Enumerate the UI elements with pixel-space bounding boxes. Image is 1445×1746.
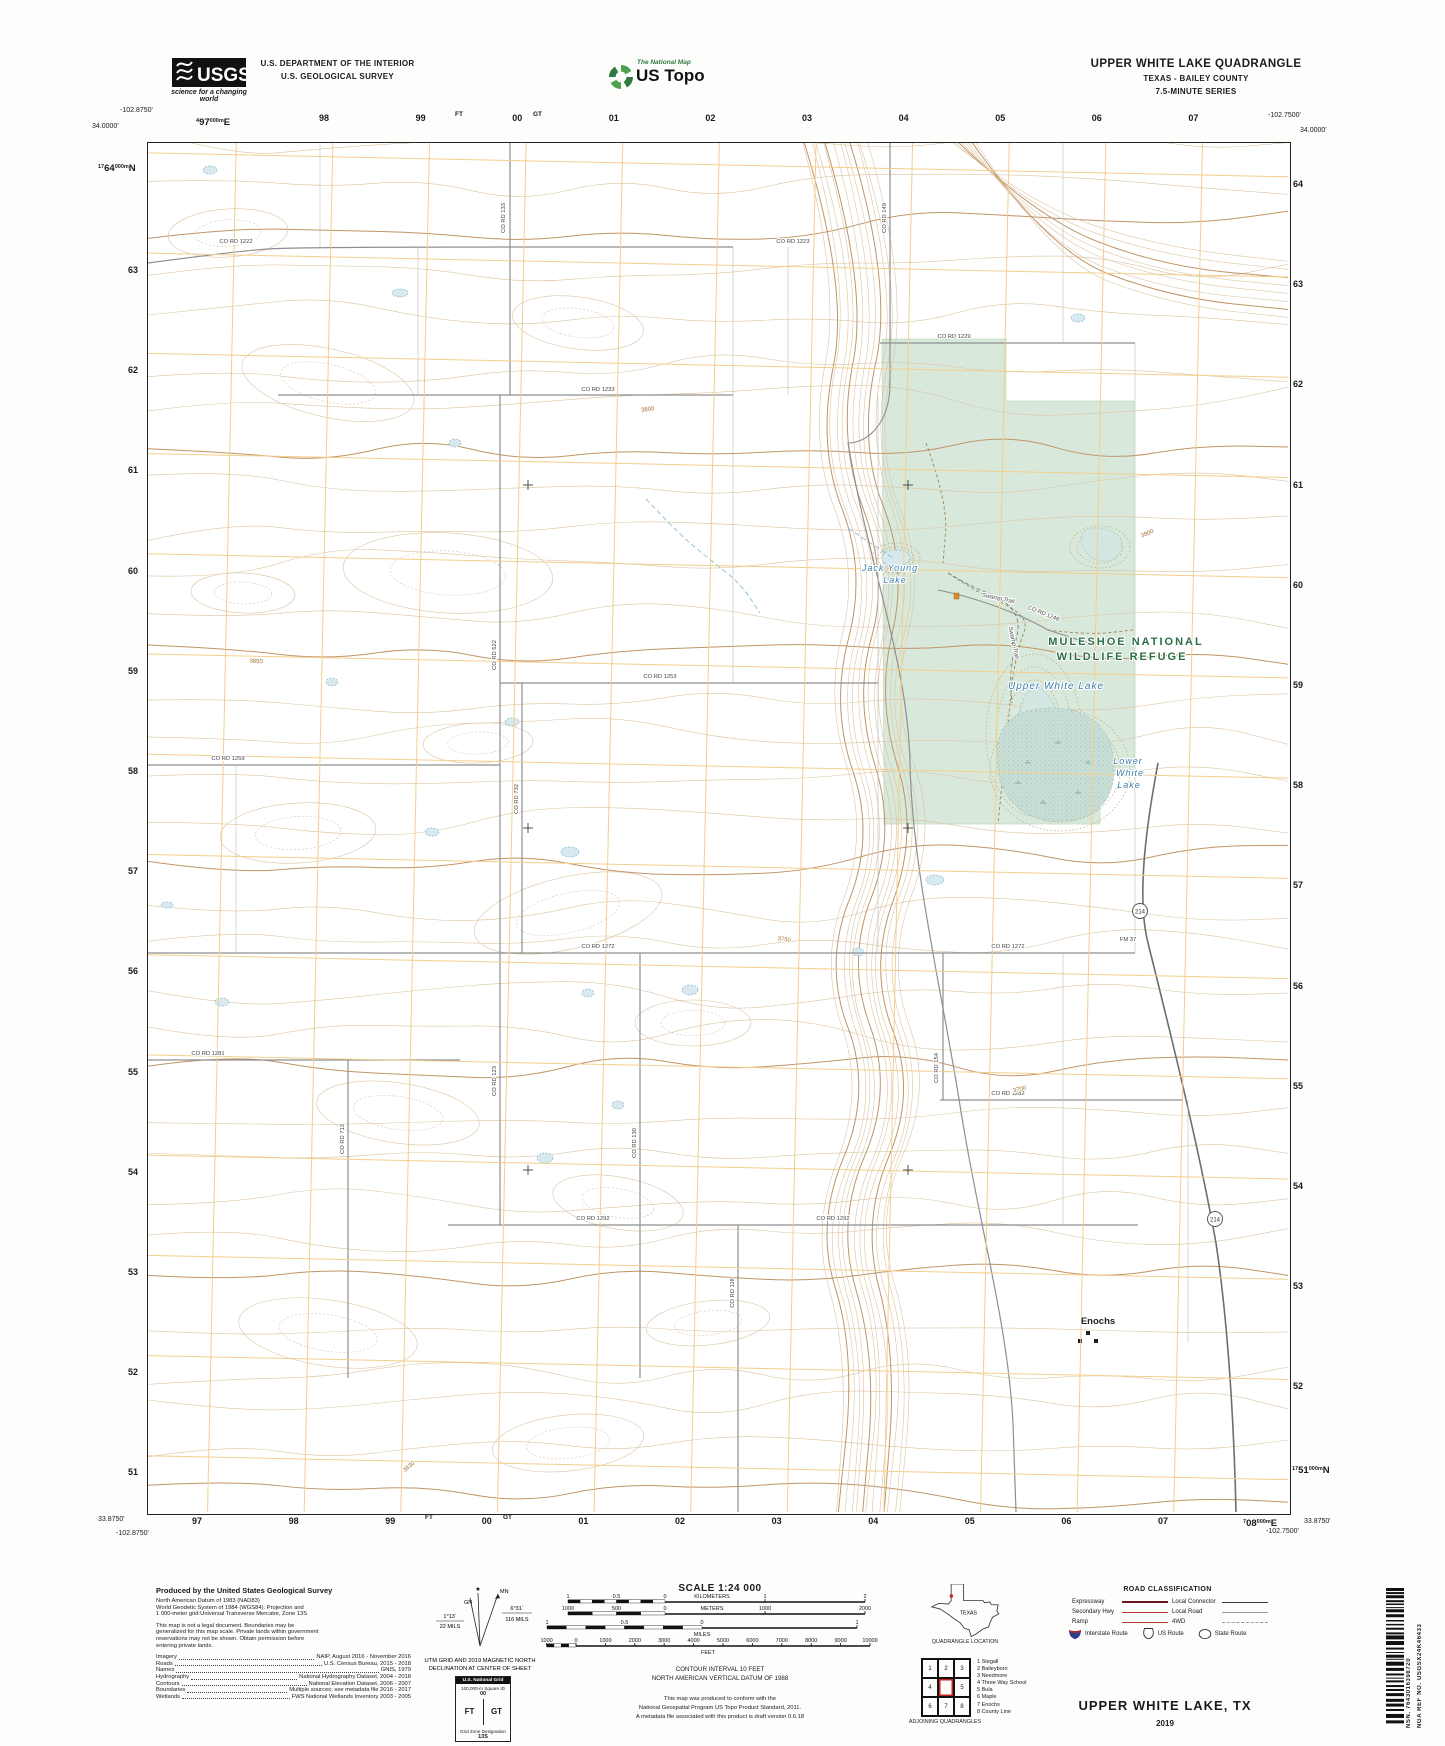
usng-box: U.S. National Grid 100,000-m Square ID 0… [455,1676,511,1742]
water-label: Lower [1113,756,1143,766]
usng-square-gt-top: GT [533,111,542,118]
road-class-sample [1222,1622,1268,1623]
scale-bar-segment [617,1612,641,1615]
svg-text:1°13´: 1°13´ [443,1614,456,1620]
data-source-key: Hydrography [156,1674,189,1681]
sheet-year: 2019 [1040,1719,1290,1728]
utm-grid-label-right: 52 [1293,1381,1303,1391]
dotted-leader [182,1685,307,1686]
adjoining-cell-center [938,1678,954,1697]
adjoining-quad-name: 2 Baileyboro [977,1666,1027,1673]
scale-bar-segment [580,1600,592,1603]
scale-tick-label: 500 [612,1606,621,1612]
road-classification-left: ExpresswaySecondary HwyRamp [1072,1597,1168,1627]
adjoining-quad-name: 5 Bula [977,1687,1027,1694]
road-class-sample [1222,1602,1268,1603]
quadrangle-title-block: UPPER WHITE LAKE QUADRANGLE TEXAS - BAIL… [1046,58,1346,96]
road-classification-title: ROAD CLASSIFICATION [1060,1586,1275,1593]
road-class-row: Ramp [1072,1617,1168,1627]
data-source-row: ImageryNAIP, August 2016 - November 2016 [156,1654,411,1661]
water-label: Upper White Lake [1008,681,1104,692]
adjoining-cell: 6 [922,1697,938,1716]
barcode-bar [1386,1624,1404,1626]
adjoining-cell: 3 [954,1659,970,1678]
scale-tick-label: FEET [701,1650,716,1656]
scale-tick-label: 0 [663,1606,666,1612]
barcode-bar [1386,1685,1404,1687]
adjoining-cell: 7 [938,1697,954,1716]
production-credits: Produced by the United States Geological… [156,1586,411,1700]
scale-bar-segment [653,1600,665,1603]
standard-note: This map was produced to conform with th… [540,1695,900,1704]
data-source-value: Multiple sources; see metadata file 2016… [289,1687,411,1694]
road-class-sample [1222,1612,1268,1613]
scale-bar-segment [592,1600,604,1603]
utm-grid-label-left: 61 [100,465,138,475]
scale-bar-segment [644,1626,663,1629]
scale-bar-segment [586,1626,605,1629]
data-source-key: Wetlands [156,1694,180,1701]
refuge-name-label: MULESHOE NATIONAL [1048,636,1203,648]
road-label: CO RD 713 [340,1124,346,1154]
utm-grid-label-right: 62 [1293,379,1303,389]
declination-diagram: ★ GN MN 1°13´ 22 MILS 6°31´ 116 MILS UTM… [398,1584,558,1676]
quadrangle-series: 7.5-MINUTE SERIES [1046,87,1346,96]
lower-white-lake [997,708,1114,821]
road-label: CO RD 154 [934,1052,940,1083]
barcode-bar [1386,1652,1404,1653]
road-class-label: Local Road [1172,1609,1222,1615]
small-pond [425,828,439,836]
standard-note: National Geospatial Program US Topo Prod… [540,1704,900,1713]
scale-bars: 10.50KILOMETERS1210005000METERS100020001… [540,1592,900,1662]
us-route-shield-icon [1142,1627,1155,1640]
building-symbol [1078,1339,1082,1343]
topographic-map: MULESHOE NATIONALWILDLIFE REFUGEJack You… [148,143,1288,1512]
barcode-bar [1386,1693,1404,1696]
data-source-row: RoadsU.S. Census Bureau, 2015 - 2018 [156,1661,411,1668]
dotted-leader [187,1692,287,1693]
scale-bar-segment [547,1644,554,1647]
water-label: Lake [883,575,907,585]
scale-tick-label: 1 [545,1620,548,1626]
scale-bar-segment [663,1626,682,1629]
state-route-number: 214 [1210,1218,1221,1224]
corner-tr-longitude: -102.7500' [1268,112,1301,119]
utm-grid-label-bottom: 05 [965,1516,975,1526]
adjoining-quadrangles-caption: ADJOINING QUADRANGLES [895,1719,995,1725]
route-shields-legend: Interstate Route US Route State Route [1068,1627,1278,1640]
contour-interval-note: CONTOUR INTERVAL 10 FEET [540,1666,900,1674]
utm-grid-label-left: 52 [100,1367,138,1377]
road-classification-right: Local ConnectorLocal Road4WD [1172,1597,1268,1627]
adjoining-cell: 8 [954,1697,970,1716]
road-label: CO RD 1223 [776,239,809,245]
water-label: Jack Young [861,563,918,573]
barcode-bar [1386,1588,1404,1591]
barcode-bar [1386,1607,1404,1608]
building-symbol [1086,1331,1090,1335]
national-map-brand: The National Map [637,59,691,66]
road-label: CO RD 1281 [191,1051,224,1057]
road-label: CO RD 1292 [816,1216,849,1222]
data-source-key: Names [156,1667,174,1674]
utm-grid-label-bottom: 98 [289,1516,299,1526]
utm-grid-label-right: 61 [1293,480,1303,490]
small-pond [392,289,408,297]
scale-bar-segment [569,1644,576,1647]
barcode-bar [1386,1659,1404,1660]
road-label: CO RD 732 [514,784,520,814]
utm-northing-label-last: 1751000mN [1292,1460,1330,1478]
barcode-bar [1386,1641,1404,1645]
utm-grid-label-bottom: 01 [578,1516,588,1526]
utm-grid-label-right: 58 [1293,780,1303,790]
road-class-label: Local Connector [1172,1599,1222,1605]
data-source-row: ContoursNational Elevation Dataset, 2006… [156,1681,411,1688]
scale-bar-segment [605,1626,624,1629]
scale-bar-segment [641,1600,653,1603]
corner-tl-latitude: 34.0000' [92,123,119,130]
adjoining-cell: 4 [922,1678,938,1697]
barcode-bar [1386,1648,1404,1650]
road-class-sample [1122,1622,1168,1623]
utm-grid-label-top: 01 [609,113,619,123]
quad-location-marker [950,1594,953,1597]
utm-grid-label-bottom: 07 [1158,1516,1168,1526]
utm-grid-label-top: 05 [995,113,1005,123]
road-class-row: Local Road [1172,1607,1268,1617]
barcode-bar [1386,1662,1404,1666]
road-label: CO RD 1259 [211,756,244,762]
water-label: White [1116,768,1144,778]
svg-text:116 MILS: 116 MILS [505,1617,528,1623]
produced-by-title: Produced by the United States Geological… [156,1586,411,1595]
svg-text:22 MILS: 22 MILS [440,1624,461,1630]
adjoining-quad-name: 7 Enochs [977,1702,1027,1709]
adjoining-quad-name: 1 Stegall [977,1659,1027,1666]
barcode-bar [1386,1620,1404,1622]
utm-grid-label-right: 57 [1293,880,1303,890]
road-label: CO RD 522 [492,640,498,670]
building-symbol [1094,1339,1098,1343]
road-label: CO RD 149 [882,203,888,233]
corner-tl-longitude: -102.8750' [120,107,153,114]
sheet-title: UPPER WHITE LAKE, TX [1040,1698,1290,1713]
small-pond [582,989,594,997]
dotted-leader [182,1698,290,1699]
utm-grid-label-top: 00 [512,113,522,123]
svg-text:DECLINATION AT CENTER OF SHEET: DECLINATION AT CENTER OF SHEET [429,1666,532,1672]
road-label: CO RD 1272 [991,944,1024,950]
utm-grid-label-top: 02 [705,113,715,123]
barcode-bar [1386,1655,1404,1658]
nga-ref-number: NGA REF NO. USGSX24K46433 [1417,1588,1423,1728]
small-pond [1071,314,1085,322]
utm-grid-label-left: 53 [100,1267,138,1277]
barcode-bar [1386,1680,1404,1682]
scale-tick-label: 1 [566,1594,569,1600]
utm-grid-label-top: 07 [1188,113,1198,123]
adjoining-cell: 5 [954,1678,970,1697]
standard-note: A metadata file associated with this pro… [540,1713,900,1722]
utm-grid-label-right: 54 [1293,1181,1303,1191]
town-label: Enochs [1081,1316,1115,1327]
barcode-bar [1386,1595,1404,1598]
scale-bar-segment [566,1626,585,1629]
data-source-value: NAIP, August 2016 - November 2016 [316,1654,411,1661]
utm-grid-label-top: 06 [1092,113,1102,123]
utm-grid-label-top: 98 [319,113,329,123]
utm-grid-label-right: 56 [1293,981,1303,991]
barcode-bar [1386,1592,1404,1594]
data-sources-list: ImageryNAIP, August 2016 - November 2016… [156,1654,411,1700]
corner-bl-latitude: 33.8750' [98,1516,125,1523]
road-class-row: 4WD [1172,1617,1268,1627]
road-label: CO RD 130 [632,1128,638,1158]
road-label: CO RD 1222 [219,239,252,245]
small-pond [326,678,338,686]
adjoining-quad-name: 8 County Line [977,1709,1027,1716]
small-pond [449,439,461,447]
road-label: CO RD 123 [492,1066,498,1096]
utm-grid-label-left: 60 [100,566,138,576]
adjoining-quad-name: 6 Maple [977,1694,1027,1701]
barcode-bar [1386,1614,1404,1617]
barcode [1386,1588,1406,1728]
data-source-row: HydrographyNational Hydrography Dataset,… [156,1674,411,1681]
scale-bar-segment [568,1600,580,1603]
utm-grid-label-right: 55 [1293,1081,1303,1091]
scale-bar-segment [625,1626,644,1629]
utm-grid-label-right: 63 [1293,279,1303,289]
road-label: CO RD 1292 [576,1216,609,1222]
barcode-bar [1386,1668,1404,1671]
scale-tick-label: METERS [701,1606,724,1612]
barcode-bar [1386,1628,1404,1630]
road-label: FM 37 [1120,937,1136,943]
utm-grid-label-right: 60 [1293,580,1303,590]
utm-grid-label-right: 53 [1293,1281,1303,1291]
scale-bar-segment [568,1612,592,1615]
small-pond [537,1153,553,1163]
utm-grid-label-top: 99 [416,113,426,123]
quadrangle-title: UPPER WHITE LAKE QUADRANGLE [1046,58,1346,70]
usng-square-ft-top: FT [455,111,463,118]
scale-tick-label: 0 [663,1594,666,1600]
usgs-topo-sheet: USGS science for a changing world U.S. D… [0,0,1445,1746]
small-pond [612,1101,624,1109]
road-class-label: Expressway [1072,1599,1122,1605]
small-pond [852,948,864,956]
nsn-number: NSN. 7643016398720 [1406,1588,1412,1728]
road-class-sample [1122,1612,1168,1613]
utm-grid-label-bottom: 04 [868,1516,878,1526]
road-class-label: Ramp [1072,1619,1122,1625]
barcode-bar [1386,1632,1404,1634]
water-label: Lake [1117,780,1141,790]
scale-bar-segment [604,1600,616,1603]
small-pond [203,166,217,174]
utm-easting-label-first: 497000mE [196,112,230,130]
utm-grid-label-left: 55 [100,1067,138,1077]
quadrangle-location-caption: QUADRANGLE LOCATION [915,1639,1015,1645]
road-label: CO RD 133 [501,203,507,233]
road-class-sample [1122,1601,1168,1603]
utm-grid-label-bottom: 02 [675,1516,685,1526]
dotted-leader [191,1679,297,1680]
department-heading: U.S. DEPARTMENT OF THE INTERIOR U.S. GEO… [225,59,450,85]
svg-text:TEXAS: TEXAS [960,1610,978,1616]
svg-text:UTM GRID AND 2019 MAGNETIC NOR: UTM GRID AND 2019 MAGNETIC NORTH [424,1658,535,1664]
adjoining-quadrangles-names: 1 Stegall2 Baileyboro3 Needmore4 Three W… [977,1659,1027,1716]
small-pond [161,902,173,908]
utm-grid-label-bottom: 06 [1061,1516,1071,1526]
small-pond [505,718,519,726]
interstate-shield-icon [1068,1627,1082,1640]
road-class-row: Local Connector [1172,1597,1268,1607]
adjoining-quadrangles-grid: 12345678 [921,1658,971,1717]
utm-grid-label-right: 59 [1293,680,1303,690]
dotted-leader [175,1665,322,1666]
data-source-key: Contours [156,1681,180,1688]
barcode-bar [1386,1714,1404,1718]
barcode-bar [1386,1720,1404,1723]
barcode-bar [1386,1678,1404,1679]
dotted-leader [179,1659,314,1660]
scale-tick-label: KILOMETERS [694,1594,730,1600]
corner-tr-latitude: 34.0000' [1300,127,1327,134]
road-class-row: Secondary Hwy [1072,1607,1168,1617]
usgs-tagline: science for a changing world [166,89,252,103]
state-locator-map: TEXAS [930,1584,1000,1638]
road-label: CO RD 1229 [937,334,970,340]
svg-text:MN: MN [500,1589,509,1595]
utm-grid-label-left: 57 [100,866,138,876]
barcode-bar [1386,1604,1404,1606]
ustopo-icon [606,60,636,92]
corner-br-latitude: 33.8750' [1304,1518,1331,1525]
data-source-row: BoundariesMultiple sources; see metadata… [156,1687,411,1694]
scale-tick-label: 0.5 [613,1594,621,1600]
adjoining-cell: 1 [922,1659,938,1678]
adjoining-quad-name: 4 Three Way School [977,1680,1027,1687]
svg-text:★: ★ [475,1586,480,1593]
scale-bar-segment [592,1612,616,1615]
contour-elevation-label: 3850 [249,659,263,666]
scale-bar-segment [547,1626,566,1629]
road-class-row: Expressway [1072,1597,1168,1607]
utm-grid-label-left: 51 [100,1467,138,1477]
barcode-bar [1386,1635,1404,1639]
utm-grid-label-bottom: 03 [772,1516,782,1526]
barcode-bar [1386,1709,1404,1711]
small-pond [561,847,579,857]
data-source-value: National Hydrography Dataset, 2004 - 201… [299,1674,411,1681]
utm-grid-label-left: 58 [100,766,138,776]
state-route-icon [1198,1628,1212,1640]
small-pond [682,985,698,995]
barcode-bar [1386,1689,1404,1691]
utm-northing-label-first: 1764000mN [98,158,136,176]
utm-grid-label-bottom: 97 [192,1516,202,1526]
corner-bl-longitude: -102.8750' [116,1530,149,1537]
data-source-row: WetlandsFWS National Wetlands Inventory … [156,1694,411,1701]
scale-bar-segment [561,1644,568,1647]
scale-bar-segment [683,1626,702,1629]
utm-grid-label-top: 04 [899,113,909,123]
utm-grid-label-left: 54 [100,1167,138,1177]
svg-text:6°31´: 6°31´ [510,1606,523,1612]
vertical-datum-note: NORTH AMERICAN VERTICAL DATUM OF 1988 [540,1675,900,1683]
refuge-name-label: WILDLIFE REFUGE [1057,651,1188,663]
utm-grid-label-bottom: 00 [482,1516,492,1526]
utm-grid-label-left: 62 [100,365,138,375]
road-class-label: 4WD [1172,1619,1222,1625]
data-source-value: National Elevation Dataset, 2006 - 2007 [309,1681,411,1688]
data-source-key: Imagery [156,1654,177,1661]
data-source-row: NamesGNIS, 1979 [156,1667,411,1674]
usng-title: U.S. National Grid [456,1677,510,1684]
ustopo-wordmark: US Topo [636,66,705,86]
adjoining-quad-name: 3 Needmore [977,1673,1027,1680]
scale-bar-segment [617,1600,629,1603]
utm-grid-label-right: 64 [1293,179,1303,189]
svg-text:GN: GN [464,1600,472,1606]
utm-grid-label-bottom: 99 [385,1516,395,1526]
scale-bar-segment [554,1644,561,1647]
map-area: MULESHOE NATIONALWILDLIFE REFUGEJack You… [147,142,1291,1515]
data-source-key: Roads [156,1661,173,1668]
scale-tick-label: 0 [700,1620,703,1626]
scale-bar-segment [629,1600,641,1603]
utm-grid-label-left: 56 [100,966,138,976]
road-label: CO RD 1233 [581,387,614,393]
scale-tick-label: 0.5 [621,1620,629,1626]
data-source-key: Boundaries [156,1687,185,1694]
state-route-number: 214 [1135,910,1146,916]
road-class-label: Secondary Hwy [1072,1609,1122,1615]
building-symbol [954,593,959,599]
barcode-bar [1386,1699,1404,1702]
utm-grid-label-left: 59 [100,666,138,676]
road-label: CO RD 1272 [581,944,614,950]
utm-grid-label-left: 63 [100,265,138,275]
scale-tick-label: 1000 [562,1606,574,1612]
barcode-bar [1386,1704,1404,1707]
barcode-bar [1386,1609,1404,1612]
barcode-bar [1386,1600,1404,1602]
quadrangle-state-county: TEXAS - BAILEY COUNTY [1046,74,1346,83]
dotted-leader [176,1672,378,1673]
road-label: CO RD 118 [730,1278,736,1308]
adjoining-cell: 2 [938,1659,954,1678]
small-pond [215,998,229,1006]
scale-bar-segment [641,1612,665,1615]
road-label: CO RD 1253 [643,674,676,680]
data-source-value: FWS National Wetlands Inventory 2003 - 2… [292,1694,411,1701]
utm-grid-label-top: 03 [802,113,812,123]
small-pond [926,875,944,885]
barcode-bar [1386,1673,1404,1675]
